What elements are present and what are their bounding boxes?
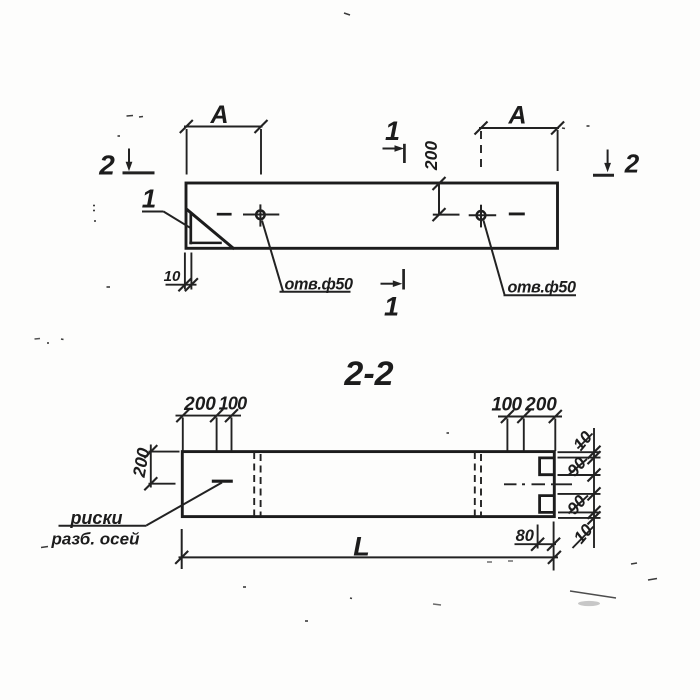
svg-text:A: A [507,102,526,130]
svg-text:1: 1 [384,292,399,322]
svg-text:1: 1 [385,116,400,146]
svg-text:отв.ф50: отв.ф50 [508,278,576,296]
svg-text:отв.ф50: отв.ф50 [285,275,353,293]
svg-text:80: 80 [516,527,535,545]
svg-text:200: 200 [183,394,216,415]
svg-text:L: L [353,532,370,562]
svg-text:риски: риски [69,508,122,528]
svg-text:1: 1 [142,184,156,214]
svg-text:10: 10 [164,268,181,285]
svg-text:разб. осей: разб. осей [51,529,141,548]
svg-text:2-2: 2-2 [343,355,393,393]
svg-text:2: 2 [624,148,640,178]
svg-text:A: A [209,101,228,129]
svg-text:200: 200 [421,141,441,171]
svg-text:100: 100 [491,395,522,416]
svg-text:200: 200 [524,395,557,416]
svg-text:100: 100 [219,394,247,414]
svg-text:2: 2 [98,149,115,180]
